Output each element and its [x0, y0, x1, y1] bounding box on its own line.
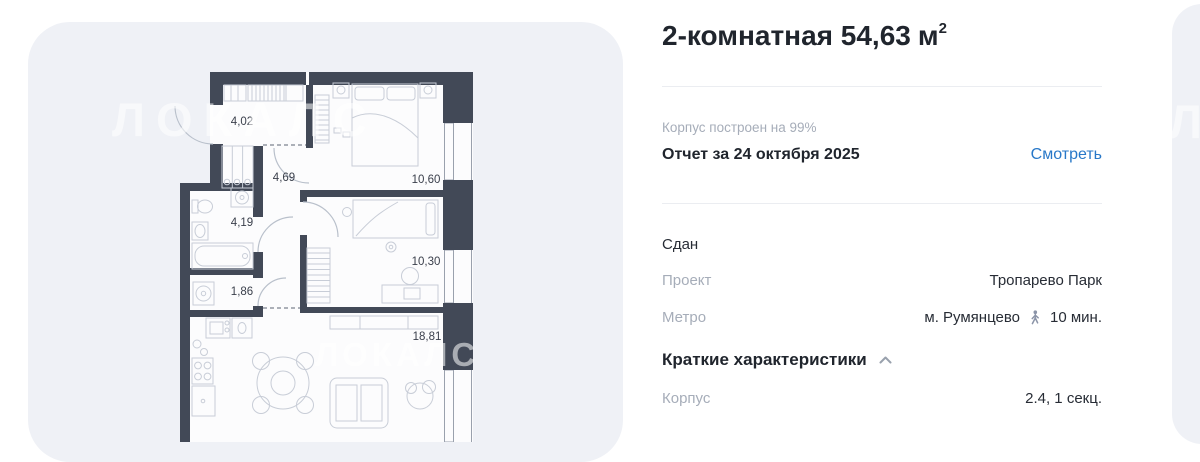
- apartment-details-panel: 2-комнатная 54,63м2 Корпус построен на 9…: [662, 0, 1102, 420]
- project-value: Тропарево Парк: [990, 272, 1103, 289]
- building-row: Корпус 2.4, 1 секц.: [662, 390, 1102, 407]
- floorplan-card: 4,02 4,69 4,19 1,86 10,60 10,30 18,81 ЛО…: [28, 22, 623, 462]
- title-text: 2-комнатная 54,63: [662, 20, 911, 51]
- project-label: Проект: [662, 272, 711, 289]
- section-header-brief-specs[interactable]: Краткие характеристики: [662, 350, 893, 370]
- report-title: Отчет за 24 октября 2025: [662, 146, 860, 164]
- title-sup: 2: [939, 20, 947, 37]
- divider: [662, 86, 1102, 87]
- building-label: Корпус: [662, 390, 710, 407]
- room-label-bathroom: 4,19: [231, 217, 253, 229]
- watermark-partial: ЛО: [1172, 94, 1200, 149]
- floorplan-drawing: 4,02 4,69 4,19 1,86 10,60 10,30 18,81: [100, 60, 540, 442]
- status-label: Сдан: [662, 236, 698, 253]
- metro-station: м. Румянцево: [924, 309, 1020, 326]
- walking-person-icon: [1029, 310, 1041, 325]
- room-label-corridor: 4,69: [273, 172, 295, 184]
- chevron-up-icon[interactable]: [878, 355, 893, 365]
- room-label-bedroom-1: 10,60: [412, 174, 441, 186]
- metro-value: м. Румянцево 10 мин.: [924, 309, 1102, 326]
- report-view-link[interactable]: Смотреть: [1031, 146, 1102, 164]
- page-title: 2-комнатная 54,63м2: [662, 20, 947, 52]
- next-card-edge: ЛО: [1172, 4, 1200, 444]
- divider: [662, 203, 1102, 204]
- metro-time: 10 мин.: [1050, 309, 1102, 326]
- report-row: Отчет за 24 октября 2025 Смотреть: [662, 146, 1102, 164]
- section-title: Краткие характеристики: [662, 350, 867, 370]
- metro-row: Метро м. Румянцево 10 мин.: [662, 309, 1102, 326]
- room-label-wc: 1,86: [231, 286, 253, 298]
- room-label-bedroom-2: 10,30: [412, 256, 441, 268]
- room-label-hallway: 4,02: [231, 116, 253, 128]
- building-value: 2.4, 1 секц.: [1025, 390, 1102, 407]
- room-label-living: 18,81: [413, 331, 442, 343]
- title-unit: м: [918, 20, 939, 51]
- project-row: Проект Тропарево Парк: [662, 272, 1102, 289]
- metro-label: Метро: [662, 309, 706, 326]
- construction-progress-label: Корпус построен на 99%: [662, 120, 817, 135]
